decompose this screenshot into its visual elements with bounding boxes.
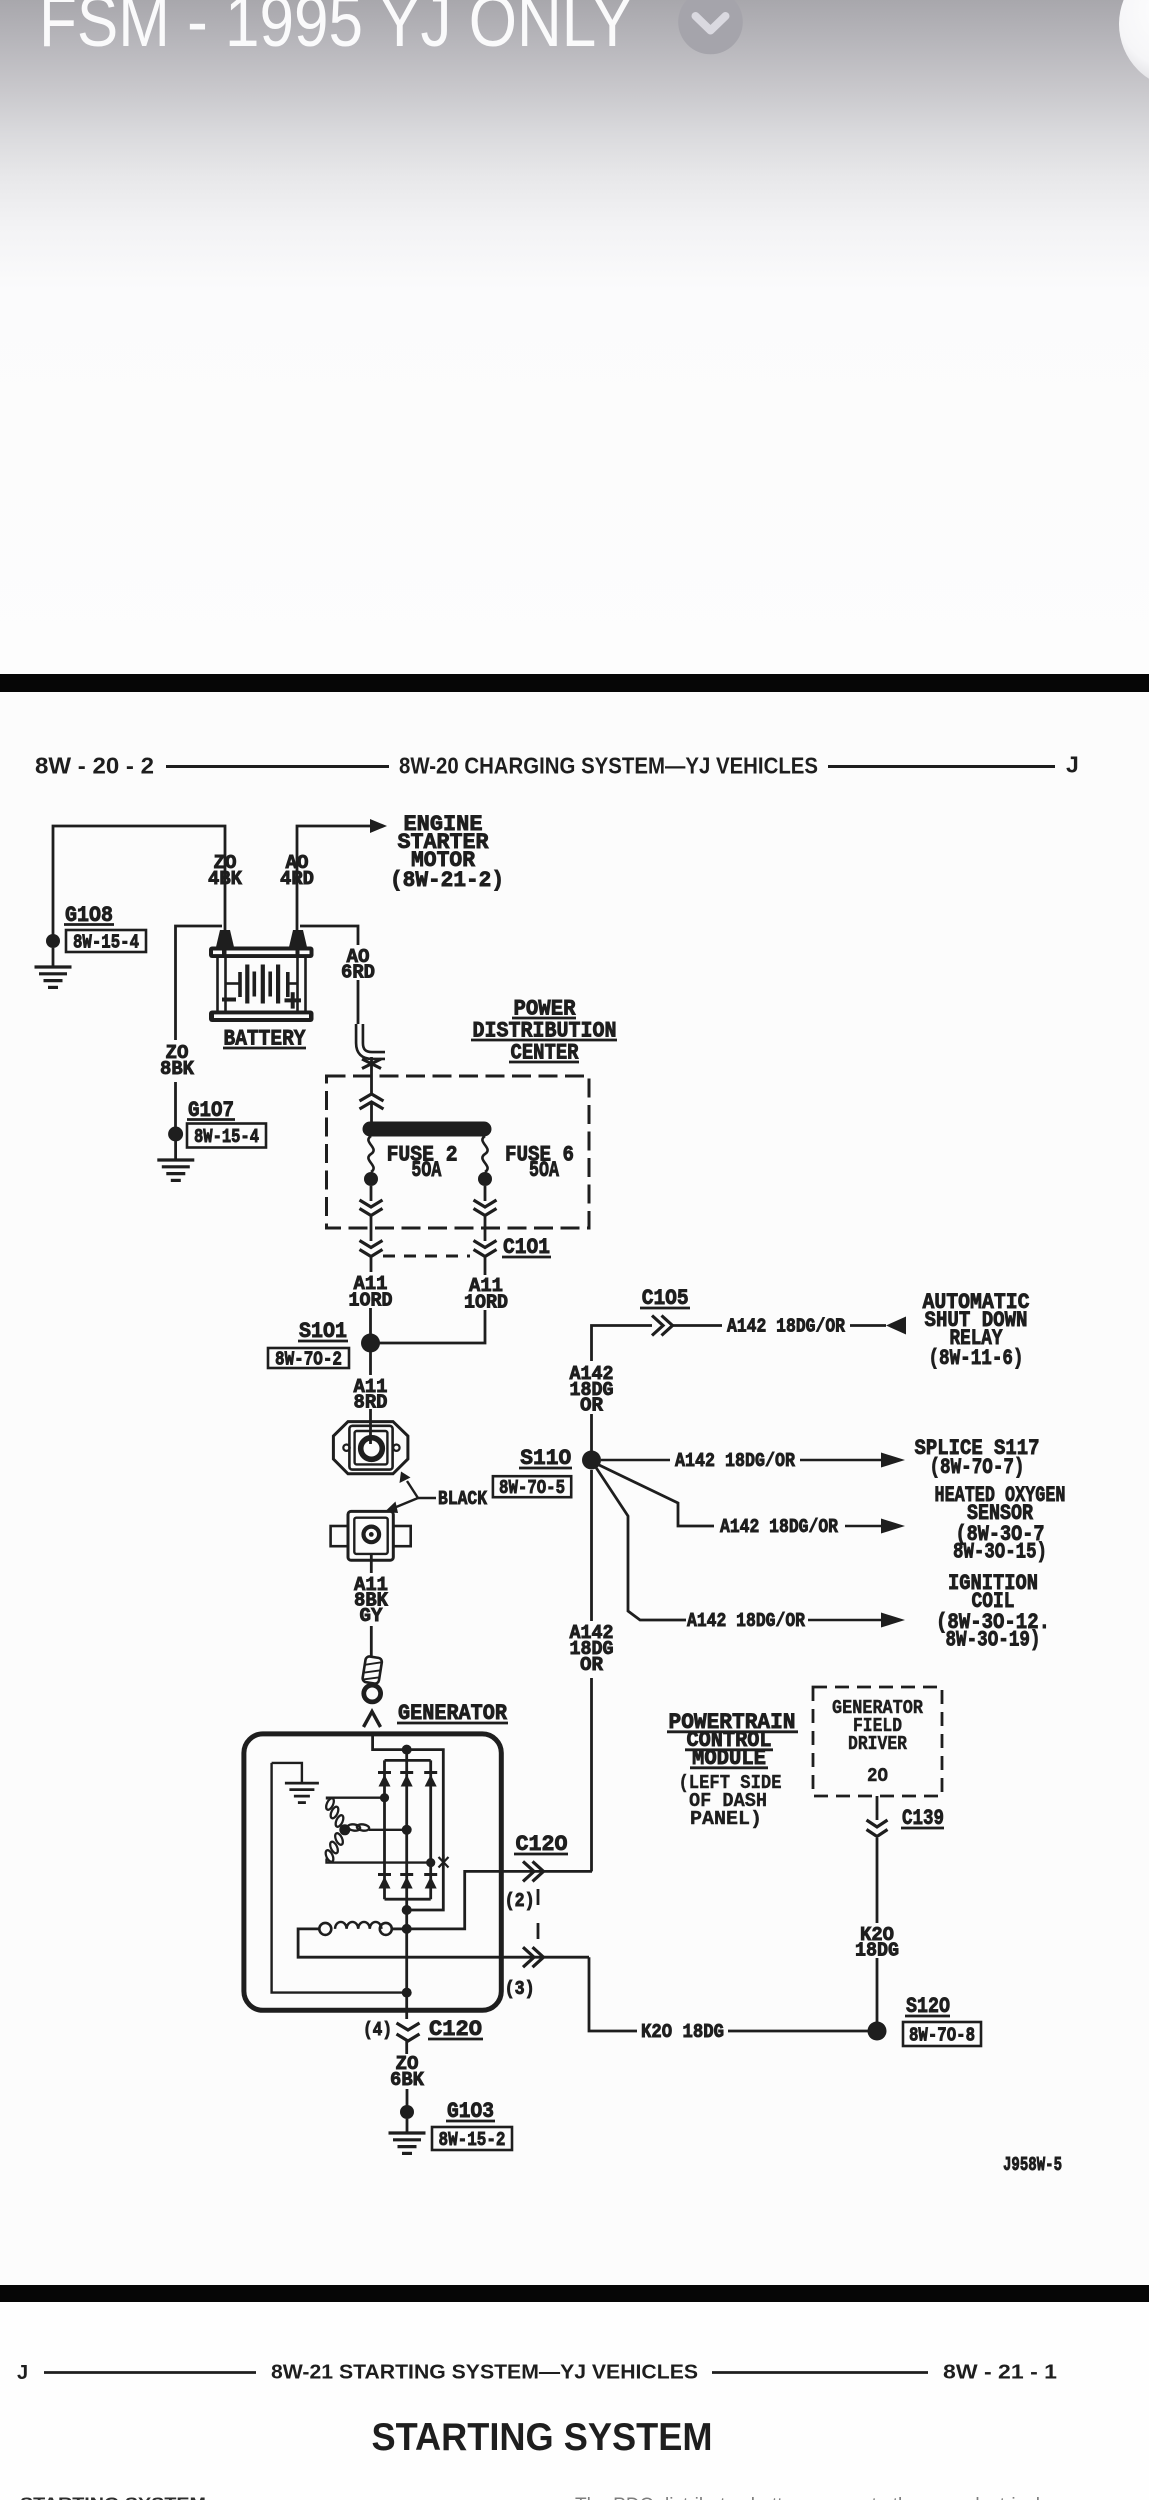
svg-text:The PDC distributes battery po: The PDC distributes battery power to the… <box>575 2495 1040 2500</box>
svg-text:6RD: 6RD <box>341 962 375 984</box>
svg-text:J: J <box>17 2362 28 2384</box>
svg-text:8W-3O-19): 8W-3O-19) <box>946 1627 1041 1653</box>
svg-text:OR: OR <box>580 1395 603 1417</box>
svg-text:2O: 2O <box>867 1765 888 1787</box>
svg-text:A142 18DG/OR: A142 18DG/OR <box>687 1610 805 1632</box>
svg-text:OR: OR <box>580 1654 603 1676</box>
svg-text:A142 18DG/OR: A142 18DG/OR <box>675 1450 795 1472</box>
svg-text:A142 18DG/OR: A142 18DG/OR <box>727 1316 845 1338</box>
svg-text:PANEL): PANEL) <box>690 1808 762 1830</box>
svg-text:8W-21 STARTING SYSTEM—YJ VEHIC: 8W-21 STARTING SYSTEM—YJ VEHICLES <box>271 2362 698 2384</box>
svg-text:STARTING SYSTEM: STARTING SYSTEM <box>372 2416 713 2459</box>
svg-text:8RD: 8RD <box>354 1392 388 1414</box>
svg-text:4BK: 4BK <box>208 868 242 890</box>
svg-text:8W - 20 - 2: 8W - 20 - 2 <box>35 753 154 779</box>
svg-text:8W-20 CHARGING SYSTEM—YJ VEHIC: 8W-20 CHARGING SYSTEM—YJ VEHICLES <box>399 753 818 779</box>
svg-text:K2O 18DG: K2O 18DG <box>641 2021 724 2043</box>
svg-text:5OA: 5OA <box>411 1157 441 1183</box>
svg-text:J958W-5: J958W-5 <box>1003 2154 1062 2176</box>
svg-text:8W-7O-5: 8W-7O-5 <box>499 1477 565 1499</box>
svg-text:FSM - 1995 YJ ONLY: FSM - 1995 YJ ONLY <box>39 0 633 62</box>
svg-text:STARTING SYSTEM: STARTING SYSTEM <box>20 2494 206 2500</box>
svg-text:A142 18DG/OR: A142 18DG/OR <box>720 1516 838 1538</box>
svg-text:8W-7O-2: 8W-7O-2 <box>275 1349 342 1371</box>
svg-text:8W - 21 - 1: 8W - 21 - 1 <box>943 2362 1057 2384</box>
svg-text:(8W-7O-7): (8W-7O-7) <box>930 1454 1025 1480</box>
svg-text:(3): (3) <box>505 1978 535 2000</box>
svg-text:(8W-21-2): (8W-21-2) <box>390 867 504 893</box>
svg-text:8BK: 8BK <box>160 1058 194 1080</box>
svg-text:J: J <box>1066 752 1079 778</box>
svg-text:GY: GY <box>360 1605 383 1627</box>
svg-text:BLACK: BLACK <box>438 1488 487 1510</box>
svg-text:18DG: 18DG <box>855 1940 899 1962</box>
svg-text:(8W-11-6): (8W-11-6) <box>929 1345 1024 1371</box>
svg-text:(2): (2) <box>505 1890 535 1912</box>
svg-text:5OA: 5OA <box>529 1157 559 1183</box>
svg-text:DRIVER: DRIVER <box>848 1733 907 1755</box>
svg-text:8W-15-4: 8W-15-4 <box>73 932 139 954</box>
svg-text:6BK: 6BK <box>390 2069 424 2091</box>
svg-text:8W-15-2: 8W-15-2 <box>439 2129 506 2151</box>
svg-text:8W-3O-15): 8W-3O-15) <box>953 1539 1047 1565</box>
svg-text:8W-7O-8: 8W-7O-8 <box>909 2025 975 2047</box>
svg-text:4RD: 4RD <box>280 868 314 890</box>
svg-text:8W-15-4: 8W-15-4 <box>194 1126 259 1148</box>
svg-text:(4): (4) <box>363 2019 392 2041</box>
